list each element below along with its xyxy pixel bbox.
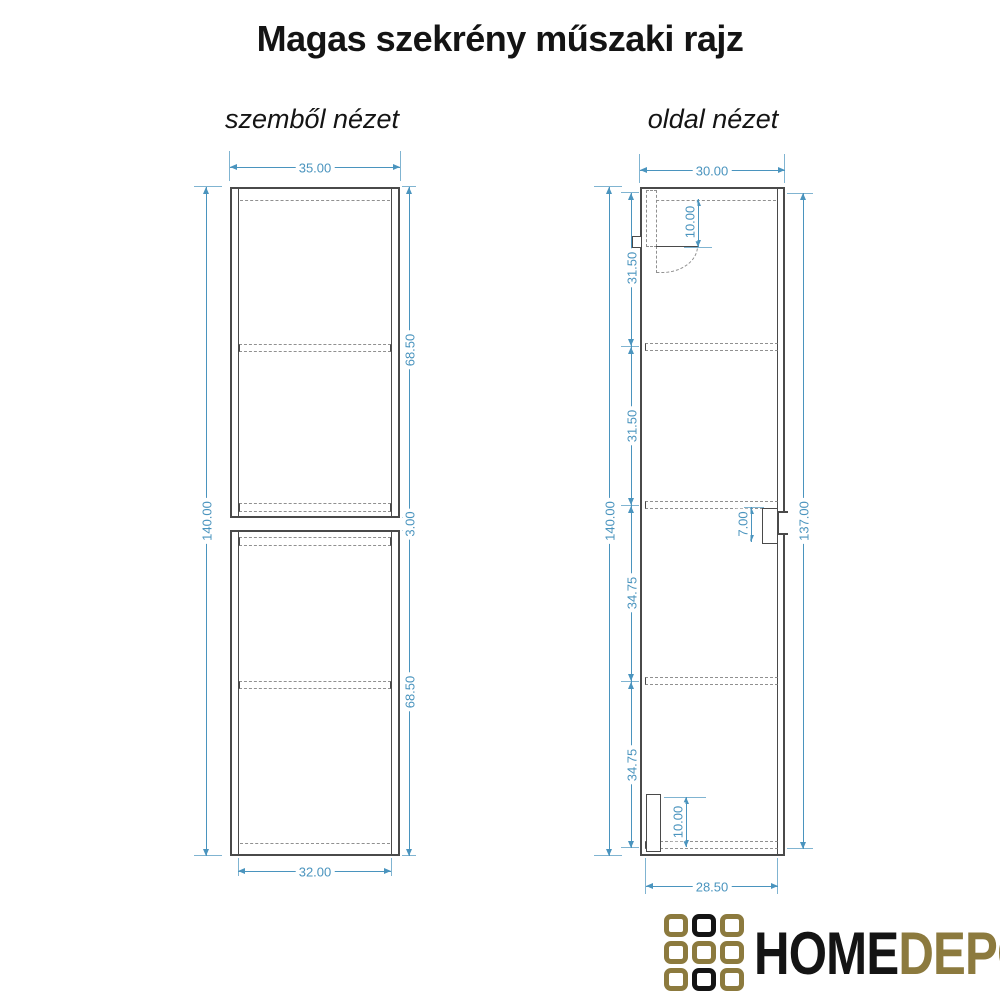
arrowhead-icon	[203, 849, 209, 856]
side-bottom-panel	[645, 841, 778, 849]
logo-square	[664, 968, 688, 991]
front-left-panel-line	[238, 532, 239, 854]
arrowhead-icon	[384, 868, 391, 874]
front-upper-module-bottom-panel	[239, 503, 391, 512]
brand-logo: HOMEDEPO	[754, 912, 1000, 994]
side-inner-height-dim: 137.00	[797, 498, 812, 544]
side-handle-block	[762, 508, 778, 544]
front-upper-shelf	[239, 344, 391, 352]
front-lower-section-dim: 68.50	[403, 673, 418, 712]
front-upper-section-dim: 68.50	[403, 331, 418, 370]
arrowhead-icon	[628, 506, 634, 513]
arrowhead-icon	[771, 883, 778, 889]
ext-line	[400, 151, 401, 181]
side-wall-cleat	[632, 236, 642, 248]
arrowhead-icon	[606, 187, 612, 194]
arrowhead-icon	[628, 339, 634, 346]
logo-square	[692, 941, 716, 964]
front-right-panel-line	[391, 189, 392, 516]
side-shelf-1	[645, 343, 778, 351]
arrowhead-icon	[606, 849, 612, 856]
logo-square	[664, 914, 688, 937]
side-plinth-block	[646, 794, 661, 852]
side-height-dim: 140.00	[603, 498, 618, 544]
front-top-width-dim: 35.00	[296, 161, 335, 176]
arrowhead-icon	[778, 167, 785, 173]
arrowhead-icon	[628, 193, 634, 200]
ext-line	[391, 858, 392, 876]
front-right-panel-line	[391, 532, 392, 854]
side-handle-notch	[777, 511, 788, 535]
arrowhead-icon	[203, 187, 209, 194]
ext-line	[684, 247, 712, 248]
logo-square	[692, 968, 716, 991]
brand-word-home: HOME	[754, 919, 898, 988]
arrowhead-icon	[406, 187, 412, 194]
arrowhead-icon	[406, 849, 412, 856]
front-height-dim: 140.00	[200, 498, 215, 544]
arrowhead-icon	[800, 193, 806, 200]
side-segment-2-dim: 31.50	[625, 407, 640, 446]
side-segment-3-dim: 34.75	[625, 574, 640, 613]
arrowhead-icon	[628, 682, 634, 689]
front-gap-dim: 3.00	[403, 508, 418, 539]
front-lower-module-outline	[230, 530, 400, 856]
side-handle-dim: 7.00	[736, 508, 751, 539]
arrowhead-icon	[393, 164, 400, 170]
side-back-rail	[646, 190, 657, 247]
side-shelf-3	[645, 677, 778, 685]
front-bottom-width-dim: 32.00	[296, 865, 335, 880]
front-lower-shelf	[239, 681, 391, 689]
side-top-hidden-line	[646, 200, 776, 201]
logo-square	[664, 941, 688, 964]
logo-square	[720, 968, 744, 991]
side-bottom-width-dim: 28.50	[693, 880, 732, 895]
arrowhead-icon	[640, 167, 647, 173]
front-upper-module-outline	[230, 187, 400, 518]
arrowhead-icon	[230, 164, 237, 170]
brand-word-depo: DEPO	[898, 919, 1000, 988]
logo-square	[720, 914, 744, 937]
arrowhead-icon	[628, 498, 634, 505]
side-segment-1-dim: 31.50	[625, 249, 640, 288]
page-title: Magas szekrény műszaki rajz	[257, 18, 744, 60]
front-view-label: szemből nézet	[225, 104, 399, 135]
logo-square	[692, 914, 716, 937]
side-view-label: oldal nézet	[648, 104, 779, 135]
arrowhead-icon	[238, 868, 245, 874]
side-top-width-dim: 30.00	[693, 164, 732, 179]
logo-square	[720, 941, 744, 964]
front-bottom-hidden-line	[240, 843, 390, 844]
arrowhead-icon	[628, 347, 634, 354]
front-left-panel-line	[238, 189, 239, 516]
arrowhead-icon	[628, 841, 634, 848]
side-bracket-dim: 10.00	[683, 203, 698, 242]
arrowhead-icon	[646, 883, 653, 889]
side-plinth-dim: 10.00	[671, 803, 686, 842]
front-top-hidden-line	[240, 200, 390, 201]
arrowhead-icon	[628, 674, 634, 681]
technical-drawing-canvas: Magas szekrény műszaki rajz szemből néze…	[0, 0, 1000, 1000]
arrowhead-icon	[800, 842, 806, 849]
logo-squares-icon	[664, 914, 744, 991]
front-lower-module-top-panel	[239, 537, 391, 546]
side-segment-4-dim: 34.75	[625, 746, 640, 785]
